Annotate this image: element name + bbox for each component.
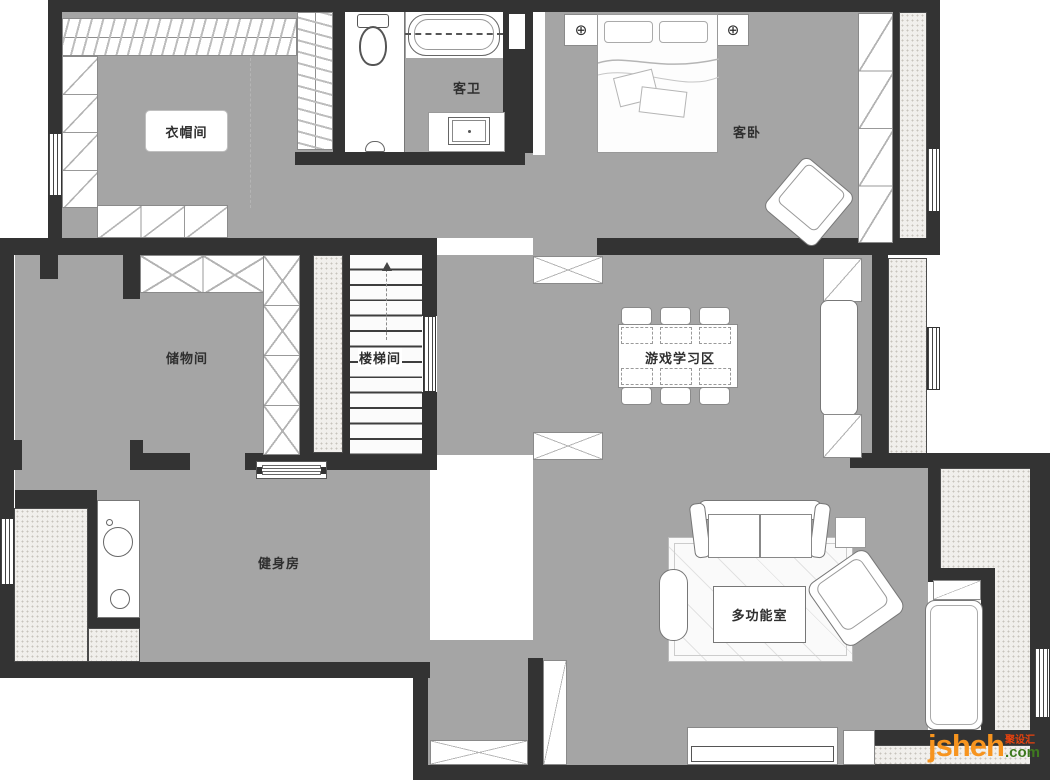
hanger-rack-top [62,18,297,56]
room-label-staircase: 楼梯间 [358,348,402,367]
cloakroom-cabinets-bottom [97,205,228,238]
hatch-gym-patio [14,508,88,662]
window-gym [0,518,14,585]
bath-dashed-line [405,33,503,35]
room-label-gym: 健身房 [258,553,300,572]
toilet-bowl [359,26,387,66]
wall-stair-hatch [343,255,350,455]
watermark: jsheh 聚设汇 .com [928,733,1040,759]
seat-outline [660,368,692,385]
floor-corridor-right [503,153,533,238]
wall-cloak-bath [333,0,345,152]
chair [660,387,691,405]
sofa-cushion [708,514,760,558]
cloakroom-cabinets-left [62,56,98,208]
wall-mfr-right [928,468,940,580]
chair [621,307,652,325]
seat-outline [699,368,731,385]
storage-cabinets-top [140,255,265,293]
sofa-cushion [760,514,812,558]
wall-bedroom-right [927,0,940,255]
wall-gym-bottom [0,662,430,678]
gym-sink-small [110,589,130,609]
cloakroom-dashed-line [250,58,251,208]
game-bench-cabinet-bottom [823,414,862,458]
tv-screen [691,746,834,762]
floor-plan: 衣帽间 客卫 ⊕ ⊕ 客卧 储物间 楼梯间 [0,0,1054,780]
watermark-brand: jsheh [928,733,1004,759]
toilet-sink [365,141,385,152]
wall-stub-3 [10,440,22,470]
game-daybed [820,300,858,416]
wall-storage-top [0,238,437,255]
wall-patio-jog [88,490,97,628]
chair [621,387,652,405]
wall-vestibule-left [413,662,428,780]
lamp-icon: ⊕ [727,23,740,38]
nightstand-right: ⊕ [717,14,749,46]
chair [660,307,691,325]
wall-storage-bottom [15,490,97,508]
wall-vestibule-right [528,658,543,768]
wall-niche [508,13,526,50]
wall-stub-5 [137,453,190,470]
wall-bath-bottom [295,152,525,165]
room-label-multi-function: 多功能室 [731,605,787,624]
wall-wardrobe-divider [893,12,899,243]
game-cabinet-bottom-left [533,432,603,460]
room-label-guest-bedroom: 客卧 [733,122,761,141]
door-jamb [321,467,326,474]
bed-cushion [639,86,688,117]
hatch-bedroom-balcony [899,12,927,243]
bed [597,14,718,153]
door-leaf [262,465,321,469]
wall-terrace-top [850,453,1050,468]
room-label-guest-bath: 客卫 [453,78,481,97]
wall-stair-left [300,255,313,455]
floor-hall [437,255,533,455]
hatch-stair-shaft [313,255,343,453]
ottoman [659,569,688,641]
game-cabinet-top-left [533,256,603,284]
nook-daybed-inner [930,605,978,725]
sofa [694,500,826,562]
window-game-area [927,327,940,390]
seat-outline [621,368,653,385]
door-leaf [262,471,321,475]
room-label-game-study: 游戏学习区 [645,348,715,367]
wall-bottom [413,765,1050,780]
gym-sink-large [103,527,133,557]
wall-top [48,0,935,12]
nook-daybed [925,600,983,730]
side-table [835,517,866,548]
chair [699,307,730,325]
storage-cabinets-right [263,255,300,455]
window-cloakroom [48,133,62,196]
coffee-table: 多功能室 [713,586,806,643]
room-label-storage: 储物间 [166,348,208,367]
door-storage [256,461,327,479]
wall-nook-right [981,582,995,745]
mfr-side-cabinet [843,730,875,765]
stair-railing [423,316,436,392]
window-terrace [1034,648,1050,718]
hatch-gym-patio-2 [88,628,140,662]
chair [699,387,730,405]
wall-stair-right-low [422,392,437,455]
hanger-rack-side [297,12,333,150]
wall-game-right [872,255,888,460]
wall-terrace-right [1030,455,1050,780]
bedroom-wardrobe [858,13,893,243]
watermark-suffix: .com [1005,746,1040,760]
cloakroom-label-box: 衣帽间 [145,110,228,152]
door-jamb [257,467,262,474]
game-bench-cabinet-top [823,258,862,302]
stair-arrow-icon [382,262,392,271]
nook-cabinet [933,580,981,600]
wall-stub-1 [40,255,58,279]
wall-left-upper [48,0,62,238]
nightstand-left: ⊕ [564,14,598,46]
room-label-cloakroom: 衣帽间 [165,122,207,141]
seat-outline [660,327,692,344]
gym-faucet [106,519,113,526]
vanity-drain [468,130,471,133]
watermark-right: 聚设汇 .com [1005,736,1040,760]
vestibule-cabinet-low [430,740,528,765]
window-bedroom [927,148,940,212]
wall-stair-right-up [422,238,437,316]
stair-direction-line [386,264,387,340]
seat-outline [621,327,653,344]
seat-outline [699,327,731,344]
vestibule-cabinet-tall [543,660,567,765]
floor-bedroom-door [533,238,597,255]
tv-cabinet [687,727,838,765]
hatch-game-balcony [888,258,927,457]
lamp-icon: ⊕ [575,23,588,38]
wall-stub-2 [123,255,140,299]
